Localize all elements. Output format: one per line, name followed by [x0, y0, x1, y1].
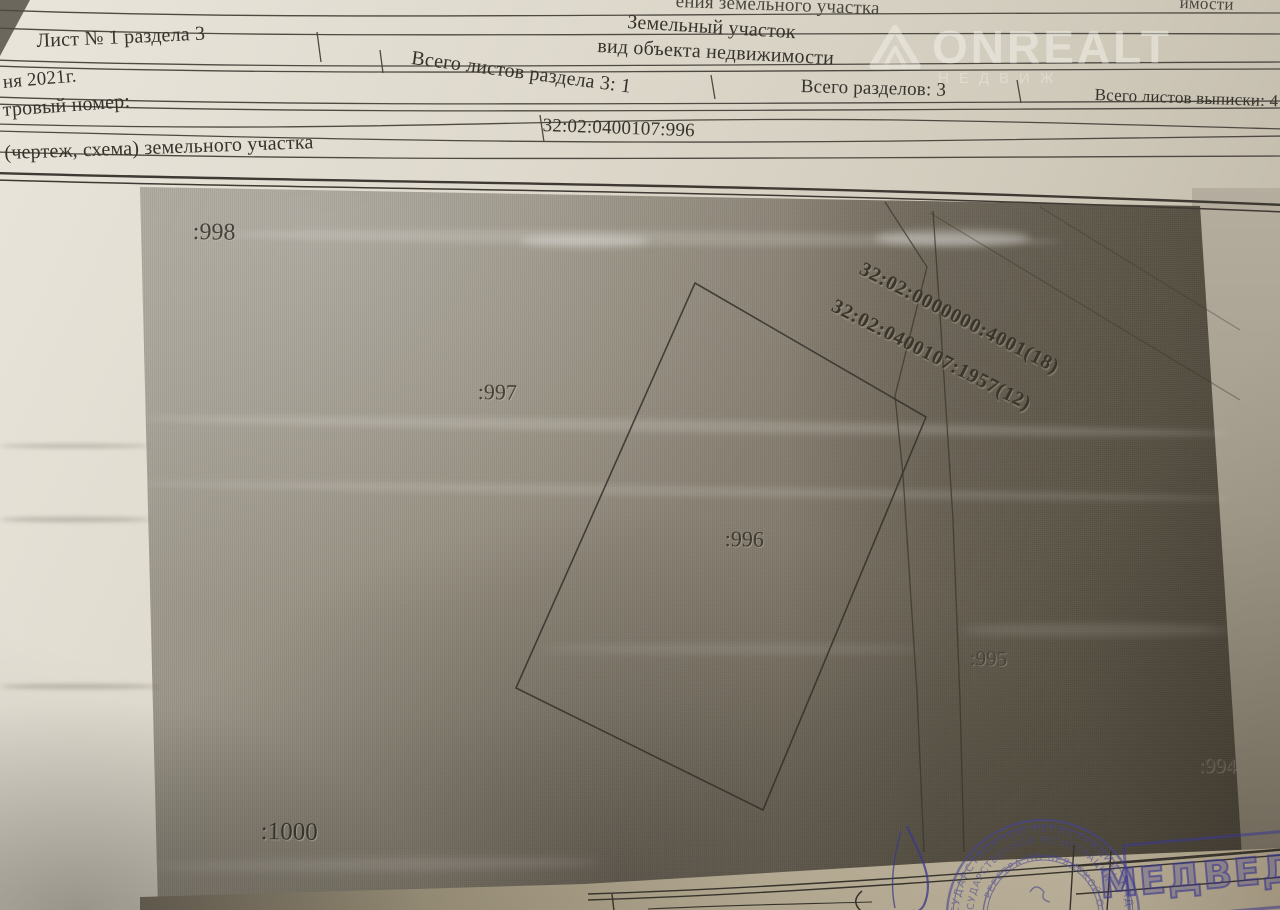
- cadastral-extract-photo: ГОСУДАРСТВЕННОЙ РЕГИСТРАЦИИ, КАД ГОСУДАР…: [0, 0, 1280, 910]
- cadastral-number-value: 32:02:0400107:996: [542, 115, 695, 142]
- parcel-label-997: :997: [478, 379, 518, 406]
- scan-streak: [960, 624, 1230, 636]
- photo-corner-shadow: [0, 0, 30, 56]
- parcel-label-1000: :1000: [261, 818, 318, 847]
- plan-scan-area: [138, 185, 1248, 910]
- onrealt-brand-text: ONREALT: [932, 20, 1172, 74]
- pencil-smudge: [0, 684, 160, 689]
- registrar-name-text: МЕДВЕДЕВ: [1098, 841, 1280, 907]
- cadastral-number-label: тровый номер:: [2, 90, 131, 122]
- clipped-top-right: имости: [1179, 0, 1234, 15]
- sheet-number-label: Лист № 1 раздела 3: [36, 23, 206, 53]
- onrealt-watermark: ONREALT НЕДВИЖ: [868, 20, 1268, 112]
- pencil-smudge: [0, 444, 150, 448]
- parcel-label-998: :998: [193, 219, 236, 247]
- parcel-label-995: :995: [970, 646, 1008, 672]
- onrealt-logo-icon: [868, 23, 922, 71]
- plan-caption: (чертеж, схема) земельного участка: [4, 131, 314, 165]
- parcel-label-994: :994: [1199, 753, 1237, 779]
- pencil-smudge: [0, 517, 150, 522]
- scan-streak: [520, 235, 650, 247]
- parcel-label-996: :996: [725, 526, 765, 553]
- scan-streak: [875, 230, 1030, 246]
- object-kind-subtitle: вид объекта недвижимости: [597, 35, 835, 70]
- date-fragment: ня 2021г.: [2, 66, 77, 94]
- scan-streak: [540, 644, 920, 654]
